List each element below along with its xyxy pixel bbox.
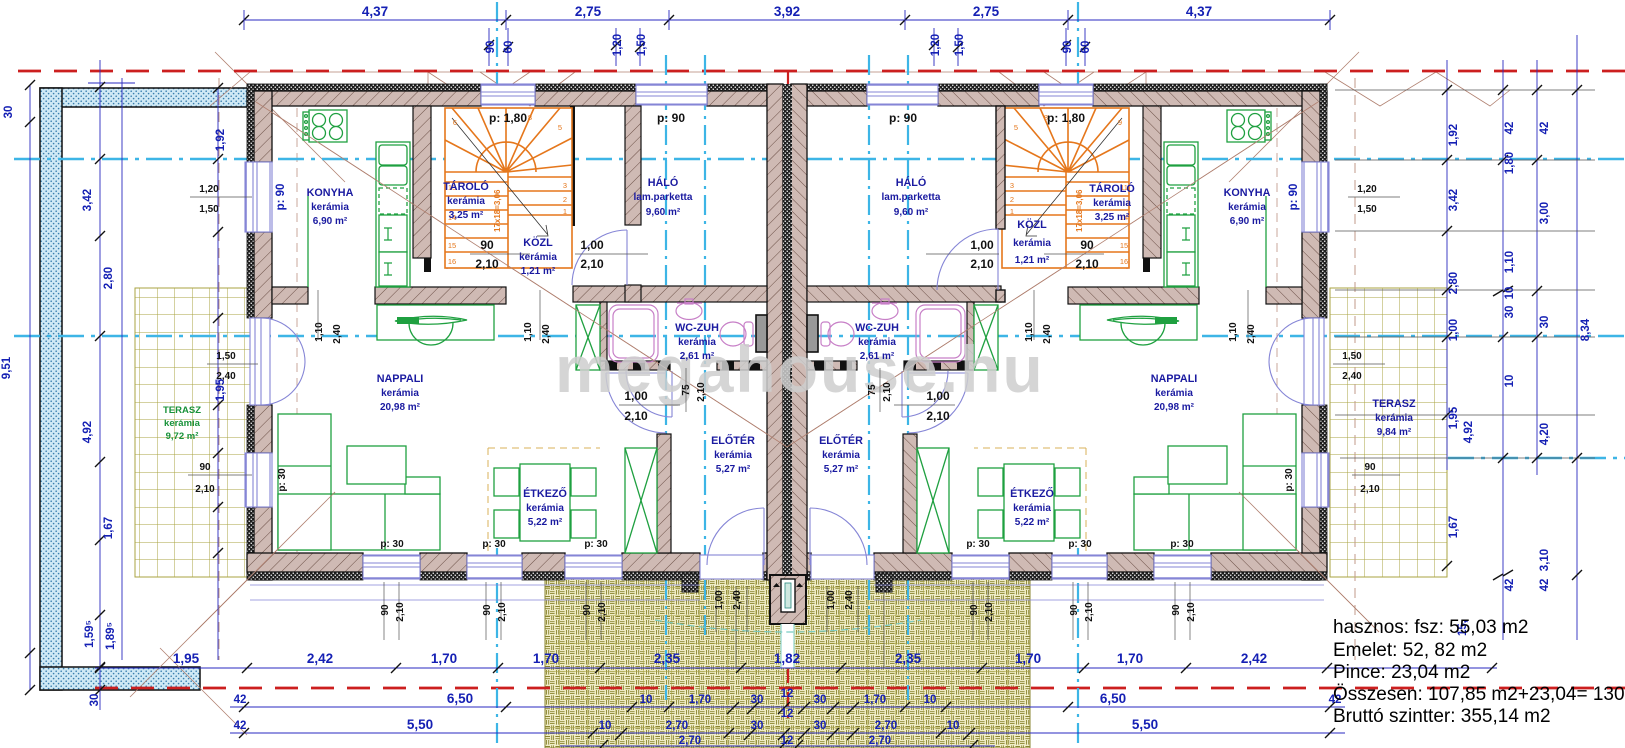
- svg-text:1,10: 1,10: [523, 322, 534, 342]
- svg-text:9,72 m²: 9,72 m²: [166, 431, 199, 442]
- svg-text:12: 12: [781, 708, 794, 720]
- svg-text:30: 30: [814, 720, 827, 732]
- svg-text:ELŐTÉR: ELŐTÉR: [711, 434, 755, 447]
- svg-text:1,10: 1,10: [1504, 251, 1516, 273]
- svg-text:5: 5: [558, 123, 562, 132]
- svg-text:42: 42: [1539, 122, 1551, 135]
- svg-text:4,37: 4,37: [1186, 4, 1212, 19]
- svg-text:42: 42: [1504, 579, 1516, 592]
- svg-text:17x18=3,06: 17x18=3,06: [493, 189, 502, 232]
- svg-text:1,89⁵: 1,89⁵: [105, 622, 117, 650]
- svg-text:p: 90: p: 90: [657, 111, 685, 125]
- svg-text:1,50: 1,50: [1357, 204, 1377, 215]
- svg-text:90: 90: [969, 604, 980, 616]
- svg-text:6: 6: [453, 118, 457, 127]
- svg-text:p: 90: p: 90: [889, 111, 917, 125]
- svg-text:2,70: 2,70: [869, 735, 891, 747]
- svg-text:9,51: 9,51: [1, 356, 13, 379]
- svg-text:p: 90: p: 90: [1288, 184, 1300, 211]
- svg-text:kerámia: kerámia: [822, 450, 860, 461]
- svg-text:1,70: 1,70: [864, 694, 886, 706]
- svg-text:90: 90: [482, 604, 493, 616]
- svg-text:20,98 m²: 20,98 m²: [380, 402, 421, 413]
- svg-text:2,61 m²: 2,61 m²: [680, 351, 715, 362]
- svg-text:2,10: 2,10: [1084, 602, 1095, 622]
- svg-text:2,10: 2,10: [1360, 484, 1380, 495]
- svg-text:p: 30: p: 30: [380, 539, 404, 550]
- svg-text:15: 15: [448, 241, 456, 250]
- svg-text:1,10: 1,10: [314, 322, 325, 342]
- svg-text:1,70: 1,70: [1117, 651, 1143, 666]
- svg-text:1,92: 1,92: [215, 129, 227, 151]
- svg-text:1,70: 1,70: [1015, 651, 1041, 666]
- svg-text:p: 90: p: 90: [275, 184, 287, 211]
- svg-text:30: 30: [1539, 316, 1551, 329]
- svg-text:2: 2: [563, 195, 567, 204]
- svg-text:2,75: 2,75: [575, 4, 602, 19]
- svg-text:90: 90: [485, 41, 497, 54]
- svg-text:12: 12: [781, 735, 794, 747]
- svg-text:4,92: 4,92: [82, 421, 94, 443]
- svg-text:1,21 m²: 1,21 m²: [521, 266, 556, 277]
- svg-text:2,35: 2,35: [654, 651, 681, 666]
- svg-text:kerámia: kerámia: [1013, 503, 1051, 514]
- svg-text:16: 16: [1120, 257, 1128, 266]
- svg-text:1,00: 1,00: [624, 389, 648, 403]
- svg-text:2,10: 2,10: [624, 409, 648, 423]
- svg-text:kerámia: kerámia: [164, 418, 201, 429]
- svg-text:2,35: 2,35: [895, 651, 922, 666]
- svg-text:p: 30: p: 30: [482, 539, 506, 550]
- svg-text:10: 10: [1504, 287, 1516, 300]
- svg-text:2,40: 2,40: [732, 590, 743, 610]
- svg-text:p: 30: p: 30: [584, 539, 608, 550]
- svg-text:90: 90: [199, 462, 211, 473]
- svg-text:2,75: 2,75: [973, 4, 1000, 19]
- svg-text:3,00: 3,00: [1539, 202, 1551, 224]
- svg-text:8: 8: [528, 113, 532, 122]
- svg-text:3: 3: [1010, 181, 1014, 190]
- svg-text:90: 90: [1080, 238, 1094, 252]
- svg-text:ÉTKEZŐ: ÉTKEZŐ: [1010, 487, 1054, 500]
- svg-text:9: 9: [1118, 118, 1122, 127]
- svg-text:1,70: 1,70: [533, 651, 559, 666]
- svg-text:p: 30: p: 30: [1068, 539, 1092, 550]
- svg-text:p: 30: p: 30: [1284, 468, 1295, 492]
- svg-text:p: 30: p: 30: [1170, 539, 1194, 550]
- svg-text:NAPPALI: NAPPALI: [1151, 373, 1198, 385]
- svg-text:2,10: 2,10: [475, 257, 499, 271]
- svg-text:1,80: 1,80: [1504, 152, 1516, 174]
- svg-text:kerámia: kerámia: [1155, 388, 1193, 399]
- svg-text:9,60 m²: 9,60 m²: [894, 207, 929, 218]
- svg-text:kerámia: kerámia: [678, 337, 716, 348]
- svg-text:2,40: 2,40: [1342, 371, 1362, 382]
- svg-text:2,10: 2,10: [195, 484, 215, 495]
- svg-text:30: 30: [751, 720, 764, 732]
- svg-text:9,84 m²: 9,84 m²: [1377, 427, 1412, 438]
- svg-text:4,92: 4,92: [1463, 421, 1475, 443]
- svg-text:1,95: 1,95: [173, 651, 200, 666]
- svg-text:WC-ZUH: WC-ZUH: [675, 322, 719, 334]
- svg-text:20,98 m²: 20,98 m²: [1154, 402, 1195, 413]
- svg-text:10: 10: [1504, 375, 1516, 388]
- svg-text:2,70: 2,70: [875, 720, 897, 732]
- svg-text:60: 60: [503, 41, 515, 54]
- svg-text:6,90 m²: 6,90 m²: [313, 216, 348, 227]
- svg-text:Összesen: 107,85 m2+23,04= 130: Összesen: 107,85 m2+23,04= 130,89: [1333, 684, 1625, 705]
- svg-text:NAPPALI: NAPPALI: [377, 373, 424, 385]
- svg-text:1,00: 1,00: [714, 590, 725, 610]
- svg-text:kerámia: kerámia: [381, 388, 419, 399]
- svg-text:TÁROLÓ: TÁROLÓ: [443, 180, 489, 193]
- svg-text:3,42: 3,42: [82, 189, 94, 211]
- svg-text:2,10: 2,10: [1075, 257, 1099, 271]
- svg-text:1: 1: [563, 207, 567, 216]
- svg-text:1,92: 1,92: [1448, 124, 1460, 146]
- svg-text:42: 42: [1504, 122, 1516, 135]
- svg-text:1,21 m²: 1,21 m²: [1015, 255, 1050, 266]
- svg-text:5,50: 5,50: [1132, 717, 1158, 732]
- svg-text:p: 30: p: 30: [966, 539, 990, 550]
- svg-text:5,27 m²: 5,27 m²: [824, 464, 859, 475]
- svg-text:2,10: 2,10: [395, 602, 406, 622]
- svg-text:90: 90: [1364, 462, 1376, 473]
- svg-text:ELŐTÉR: ELŐTÉR: [819, 434, 863, 447]
- svg-text:8,34: 8,34: [1580, 318, 1592, 341]
- svg-text:2,40: 2,40: [541, 324, 552, 344]
- svg-text:2,42: 2,42: [1241, 651, 1267, 666]
- svg-text:p: 1,80: p: 1,80: [1047, 111, 1085, 125]
- svg-text:1,00: 1,00: [926, 389, 950, 403]
- svg-text:2,10: 2,10: [580, 257, 604, 271]
- svg-text:1,00: 1,00: [1448, 319, 1460, 341]
- svg-text:HÁLÓ: HÁLÓ: [648, 176, 679, 189]
- svg-text:10: 10: [924, 694, 937, 706]
- svg-text:kerámia: kerámia: [1375, 413, 1413, 424]
- svg-text:90: 90: [1069, 604, 1080, 616]
- svg-text:TERASZ: TERASZ: [1372, 398, 1416, 410]
- svg-text:kerámia: kerámia: [714, 450, 752, 461]
- svg-text:1,10: 1,10: [1228, 322, 1239, 342]
- svg-text:ÉTKEZŐ: ÉTKEZŐ: [523, 487, 567, 500]
- svg-text:42: 42: [1539, 579, 1551, 592]
- svg-text:2,10: 2,10: [1186, 602, 1197, 622]
- svg-text:75: 75: [681, 384, 692, 396]
- svg-text:10: 10: [947, 720, 960, 732]
- svg-text:2,80: 2,80: [1448, 272, 1460, 294]
- svg-text:30: 30: [1504, 306, 1516, 319]
- svg-text:42: 42: [234, 694, 247, 706]
- svg-text:1,20: 1,20: [930, 34, 942, 56]
- svg-text:6,50: 6,50: [447, 691, 473, 706]
- svg-text:hasznos: fsz: 55,03 m2: hasznos: fsz: 55,03 m2: [1333, 617, 1528, 638]
- svg-text:2,70: 2,70: [666, 720, 688, 732]
- svg-text:5: 5: [1014, 123, 1018, 132]
- svg-text:16: 16: [448, 257, 456, 266]
- svg-text:p: 1,80: p: 1,80: [489, 111, 527, 125]
- svg-text:5,22 m²: 5,22 m²: [1015, 517, 1050, 528]
- svg-text:2,10: 2,10: [984, 602, 995, 622]
- svg-text:Pince: 23,04 m2: Pince: 23,04 m2: [1333, 662, 1470, 683]
- svg-text:2,70: 2,70: [679, 735, 701, 747]
- svg-text:90: 90: [1171, 604, 1182, 616]
- svg-text:30: 30: [89, 694, 101, 707]
- svg-text:2,10: 2,10: [882, 382, 893, 402]
- svg-text:TÁROLÓ: TÁROLÓ: [1089, 182, 1135, 195]
- svg-text:5,50: 5,50: [407, 717, 433, 732]
- svg-text:1,50: 1,50: [636, 34, 648, 56]
- svg-text:1,50: 1,50: [954, 34, 966, 56]
- svg-text:3,25 m²: 3,25 m²: [449, 210, 484, 221]
- svg-text:30: 30: [751, 694, 764, 706]
- svg-text:1,95: 1,95: [1448, 406, 1460, 429]
- svg-text:KÖZL: KÖZL: [1017, 218, 1047, 231]
- svg-text:1,82: 1,82: [774, 651, 800, 666]
- svg-text:3,25 m²: 3,25 m²: [1095, 212, 1130, 223]
- svg-text:p: 30: p: 30: [277, 468, 288, 492]
- svg-text:kerámia: kerámia: [1013, 238, 1051, 249]
- svg-text:2,80: 2,80: [103, 267, 115, 289]
- svg-text:Bruttó szintter: 355,14 m2: Bruttó szintter: 355,14 m2: [1333, 706, 1551, 727]
- svg-text:2,10: 2,10: [597, 602, 608, 622]
- svg-text:42: 42: [234, 720, 247, 732]
- svg-text:30: 30: [814, 694, 827, 706]
- svg-text:90: 90: [582, 604, 593, 616]
- svg-text:4,37: 4,37: [362, 4, 388, 19]
- svg-text:3: 3: [563, 181, 567, 190]
- svg-text:2,10: 2,10: [926, 409, 950, 423]
- svg-text:75: 75: [867, 384, 878, 396]
- svg-text:1,59⁵: 1,59⁵: [84, 620, 96, 648]
- svg-text:12: 12: [781, 688, 794, 700]
- svg-text:2,40: 2,40: [216, 371, 236, 382]
- svg-text:6,90 m²: 6,90 m²: [1230, 216, 1265, 227]
- svg-text:6,50: 6,50: [1100, 691, 1126, 706]
- svg-text:5,27 m²: 5,27 m²: [716, 464, 751, 475]
- svg-text:2,40: 2,40: [844, 590, 855, 610]
- svg-text:1,70: 1,70: [431, 651, 457, 666]
- svg-text:2,61 m²: 2,61 m²: [860, 351, 895, 362]
- svg-text:4,20: 4,20: [1539, 423, 1551, 445]
- svg-text:2,42: 2,42: [307, 651, 333, 666]
- svg-text:9,60 m²: 9,60 m²: [646, 207, 681, 218]
- svg-text:1,20: 1,20: [199, 184, 219, 195]
- svg-text:1,50: 1,50: [216, 351, 236, 362]
- svg-text:90: 90: [1062, 41, 1074, 54]
- svg-text:90: 90: [380, 604, 391, 616]
- svg-text:1,50: 1,50: [1342, 351, 1362, 362]
- svg-text:1,00: 1,00: [826, 590, 837, 610]
- svg-text:lam.parketta: lam.parketta: [634, 192, 693, 203]
- svg-text:kerámia: kerámia: [858, 337, 896, 348]
- svg-text:1,50: 1,50: [199, 204, 219, 215]
- svg-text:lam.parketta: lam.parketta: [882, 192, 941, 203]
- svg-text:1,00: 1,00: [580, 238, 604, 252]
- svg-text:60: 60: [1080, 41, 1092, 54]
- svg-text:5,22 m²: 5,22 m²: [528, 517, 563, 528]
- svg-text:30: 30: [3, 106, 15, 119]
- svg-text:TERASZ: TERASZ: [163, 405, 201, 416]
- svg-text:KÖZL: KÖZL: [523, 236, 553, 249]
- svg-text:1,67: 1,67: [1448, 516, 1460, 538]
- svg-text:1,20: 1,20: [1357, 184, 1377, 195]
- svg-text:2,40: 2,40: [1042, 324, 1053, 344]
- svg-text:2,10: 2,10: [970, 257, 994, 271]
- svg-text:1,67: 1,67: [103, 517, 115, 539]
- svg-text:kerámia: kerámia: [526, 503, 564, 514]
- svg-text:1,70: 1,70: [689, 694, 711, 706]
- svg-text:15: 15: [1120, 241, 1128, 250]
- svg-text:1: 1: [1010, 207, 1014, 216]
- svg-text:1,20: 1,20: [612, 34, 624, 56]
- svg-text:3,92: 3,92: [774, 4, 800, 19]
- svg-text:kerámia: kerámia: [447, 196, 485, 207]
- svg-text:HÁLÓ: HÁLÓ: [896, 176, 927, 189]
- svg-text:3,10: 3,10: [1539, 549, 1551, 571]
- svg-text:Emelet: 52, 82 m2: Emelet: 52, 82 m2: [1333, 640, 1487, 661]
- svg-text:kerámia: kerámia: [1093, 198, 1131, 209]
- svg-text:1,10: 1,10: [1024, 322, 1035, 342]
- svg-text:3,42: 3,42: [1448, 189, 1460, 211]
- svg-text:KONYHA: KONYHA: [307, 187, 354, 199]
- svg-text:WC-ZUH: WC-ZUH: [855, 322, 899, 334]
- svg-text:2: 2: [1010, 195, 1014, 204]
- svg-text:17x18=3,06: 17x18=3,06: [1075, 189, 1084, 232]
- svg-text:KONYHA: KONYHA: [1224, 187, 1271, 199]
- svg-text:kerámia: kerámia: [1228, 202, 1266, 213]
- svg-text:kerámia: kerámia: [311, 202, 349, 213]
- svg-text:90: 90: [480, 238, 494, 252]
- svg-text:1,00: 1,00: [970, 238, 994, 252]
- svg-text:2,10: 2,10: [497, 602, 508, 622]
- svg-text:2,10: 2,10: [696, 382, 707, 402]
- svg-text:10: 10: [640, 694, 653, 706]
- svg-text:2,40: 2,40: [332, 324, 343, 344]
- svg-text:10: 10: [599, 720, 612, 732]
